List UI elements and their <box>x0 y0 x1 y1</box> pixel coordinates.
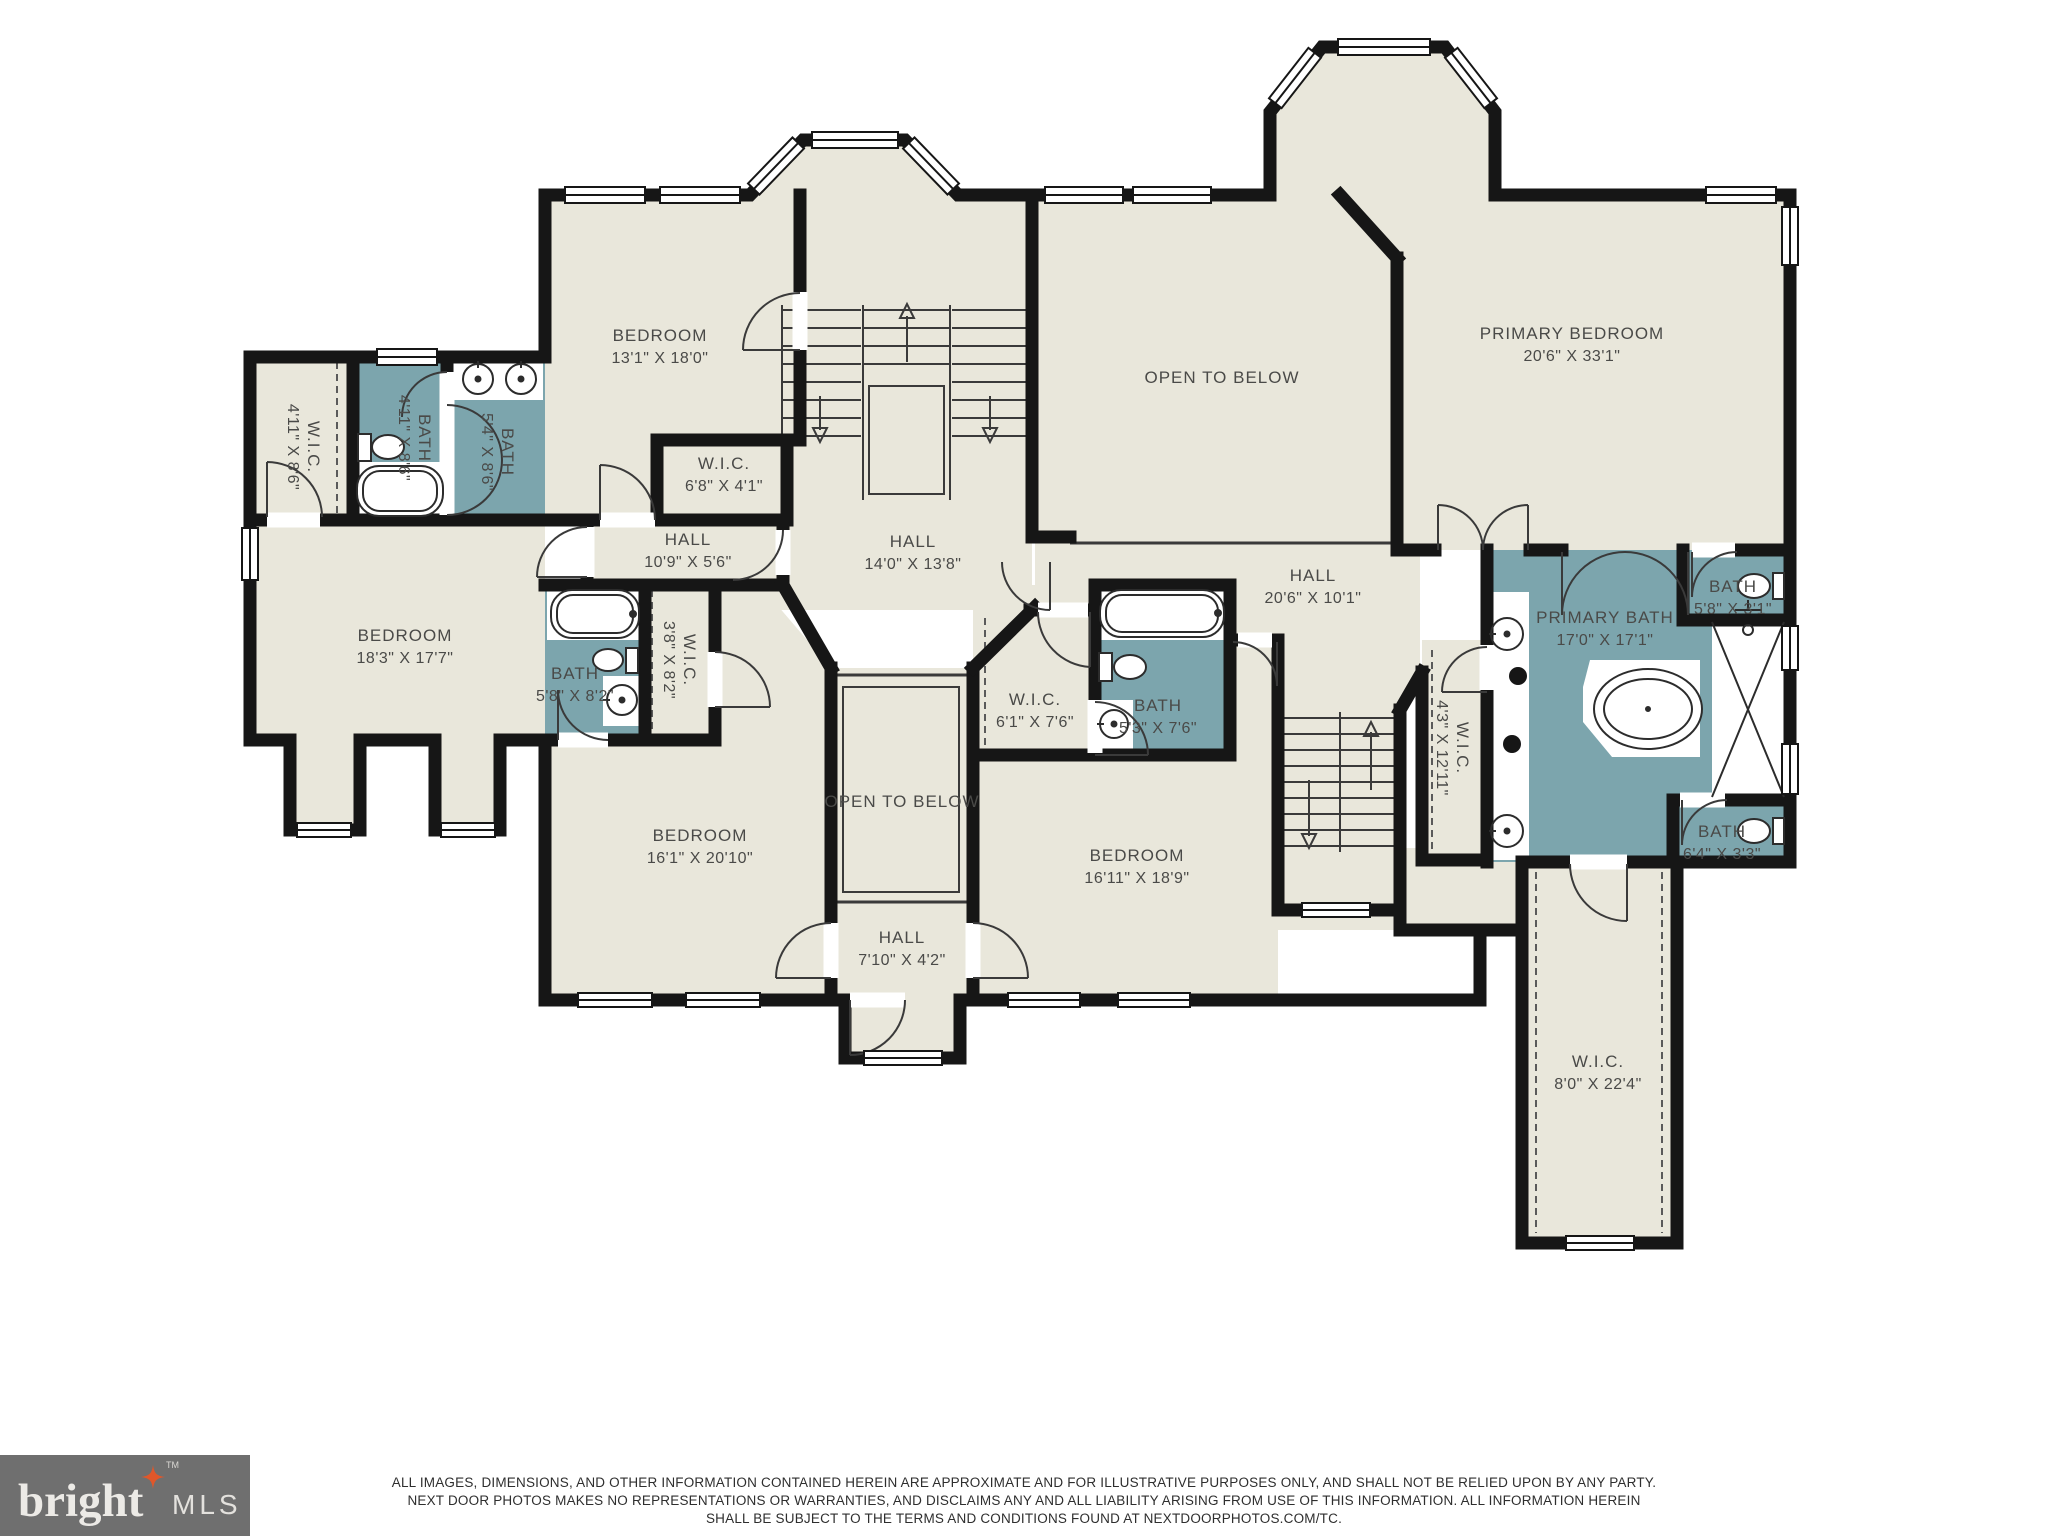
room-dims: 3'8" X 8'2" <box>660 621 677 699</box>
soaking-tub-icon <box>1594 669 1702 749</box>
room-label: W.I.C. <box>304 421 323 473</box>
room-dims: 14'0" X 13'8" <box>865 556 962 573</box>
room-label: BATH <box>1709 577 1757 596</box>
room-label: HALL <box>665 530 712 549</box>
room-label: BATH <box>498 428 517 476</box>
room-dims: 6'4" X 3'3" <box>1683 846 1761 863</box>
room-label: OPEN TO BELOW <box>824 792 979 811</box>
room-dims: 13'1" X 18'0" <box>612 350 709 367</box>
room-label: BATH <box>1134 696 1182 715</box>
bathtub-icon <box>551 590 639 638</box>
room-dims: 4'11" X 8'6" <box>395 395 412 481</box>
logo-tm-text: TM <box>166 1460 179 1470</box>
room-dims: 17'0" X 17'1" <box>1557 632 1654 649</box>
room-label: PRIMARY BEDROOM <box>1480 324 1664 343</box>
rear-staircase <box>1284 712 1396 852</box>
room-dims: 16'1" X 20'10" <box>647 850 753 867</box>
vanity-dot <box>1509 667 1527 685</box>
room-dims: 5'8" X 3'1" <box>1694 601 1772 618</box>
room-dims: 6'1" X 7'6" <box>996 714 1074 731</box>
floor-plan-drawing: BEDROOM 13'1" X 18'0" W.I.C. 6'8" X 4'1"… <box>0 0 2048 1536</box>
bright-mls-logo: bright TM MLS <box>0 1455 250 1536</box>
room-dims: 16'11" X 18'9" <box>1084 870 1189 887</box>
room-label: BEDROOM <box>653 826 748 845</box>
toilet-icon <box>1099 653 1146 681</box>
room-dims: 6'8" X 4'1" <box>685 478 763 495</box>
room-dims: 4'3" X 12'11" <box>1433 700 1450 796</box>
logo-brand-text: bright <box>18 1475 144 1527</box>
room-dims: 10'9" X 5'6" <box>644 554 732 571</box>
room-label: BEDROOM <box>613 326 708 345</box>
room-label: HALL <box>1290 566 1337 585</box>
bathtub-icon <box>1100 590 1224 637</box>
floor-plan-page: BEDROOM 13'1" X 18'0" W.I.C. 6'8" X 4'1"… <box>0 0 2048 1536</box>
room-label: BEDROOM <box>1090 846 1185 865</box>
room-label: HALL <box>890 532 937 551</box>
room-label: W.I.C. <box>698 454 750 473</box>
room-dims: 8'0" X 22'4" <box>1554 1076 1642 1093</box>
disclaimer-line: NEXT DOOR PHOTOS MAKES NO REPRESENTATION… <box>407 1493 1640 1508</box>
toilet-icon <box>593 648 638 673</box>
room-label: BATH <box>415 414 434 462</box>
room-dims: 5'3" X 7'6" <box>1119 720 1197 737</box>
room-dims: 5'8" X 8'2" <box>536 688 614 705</box>
logo-mls-text: MLS <box>172 1489 242 1520</box>
disclaimer-line: SHALL BE SUBJECT TO THE TERMS AND CONDIT… <box>706 1511 1342 1526</box>
room-dims: 7'10" X 4'2" <box>858 952 946 969</box>
footer: ALL IMAGES, DIMENSIONS, AND OTHER INFORM… <box>0 1455 1656 1536</box>
room-label: W.I.C. <box>1453 722 1472 774</box>
room-label: BEDROOM <box>358 626 453 645</box>
room-label: HALL <box>879 928 926 947</box>
room-dims: 5'4" X 8'6" <box>478 413 495 491</box>
room-label: PRIMARY BATH <box>1536 608 1674 627</box>
room-label: W.I.C. <box>1572 1052 1624 1071</box>
room-dims: 4'11" X 8'6" <box>284 404 301 490</box>
room-label: BATH <box>551 664 599 683</box>
room-label: OPEN TO BELOW <box>1144 368 1299 387</box>
room-label: W.I.C. <box>680 634 699 686</box>
room-label: W.I.C. <box>1009 690 1061 709</box>
disclaimer-line: ALL IMAGES, DIMENSIONS, AND OTHER INFORM… <box>392 1475 1656 1490</box>
room-dims: 20'6" X 33'1" <box>1524 348 1621 365</box>
vanity-dot <box>1503 735 1521 753</box>
room-dims: 20'6" X 10'1" <box>1265 590 1362 607</box>
room-dims: 18'3" X 17'7" <box>357 650 454 667</box>
room-label: BATH <box>1698 822 1746 841</box>
